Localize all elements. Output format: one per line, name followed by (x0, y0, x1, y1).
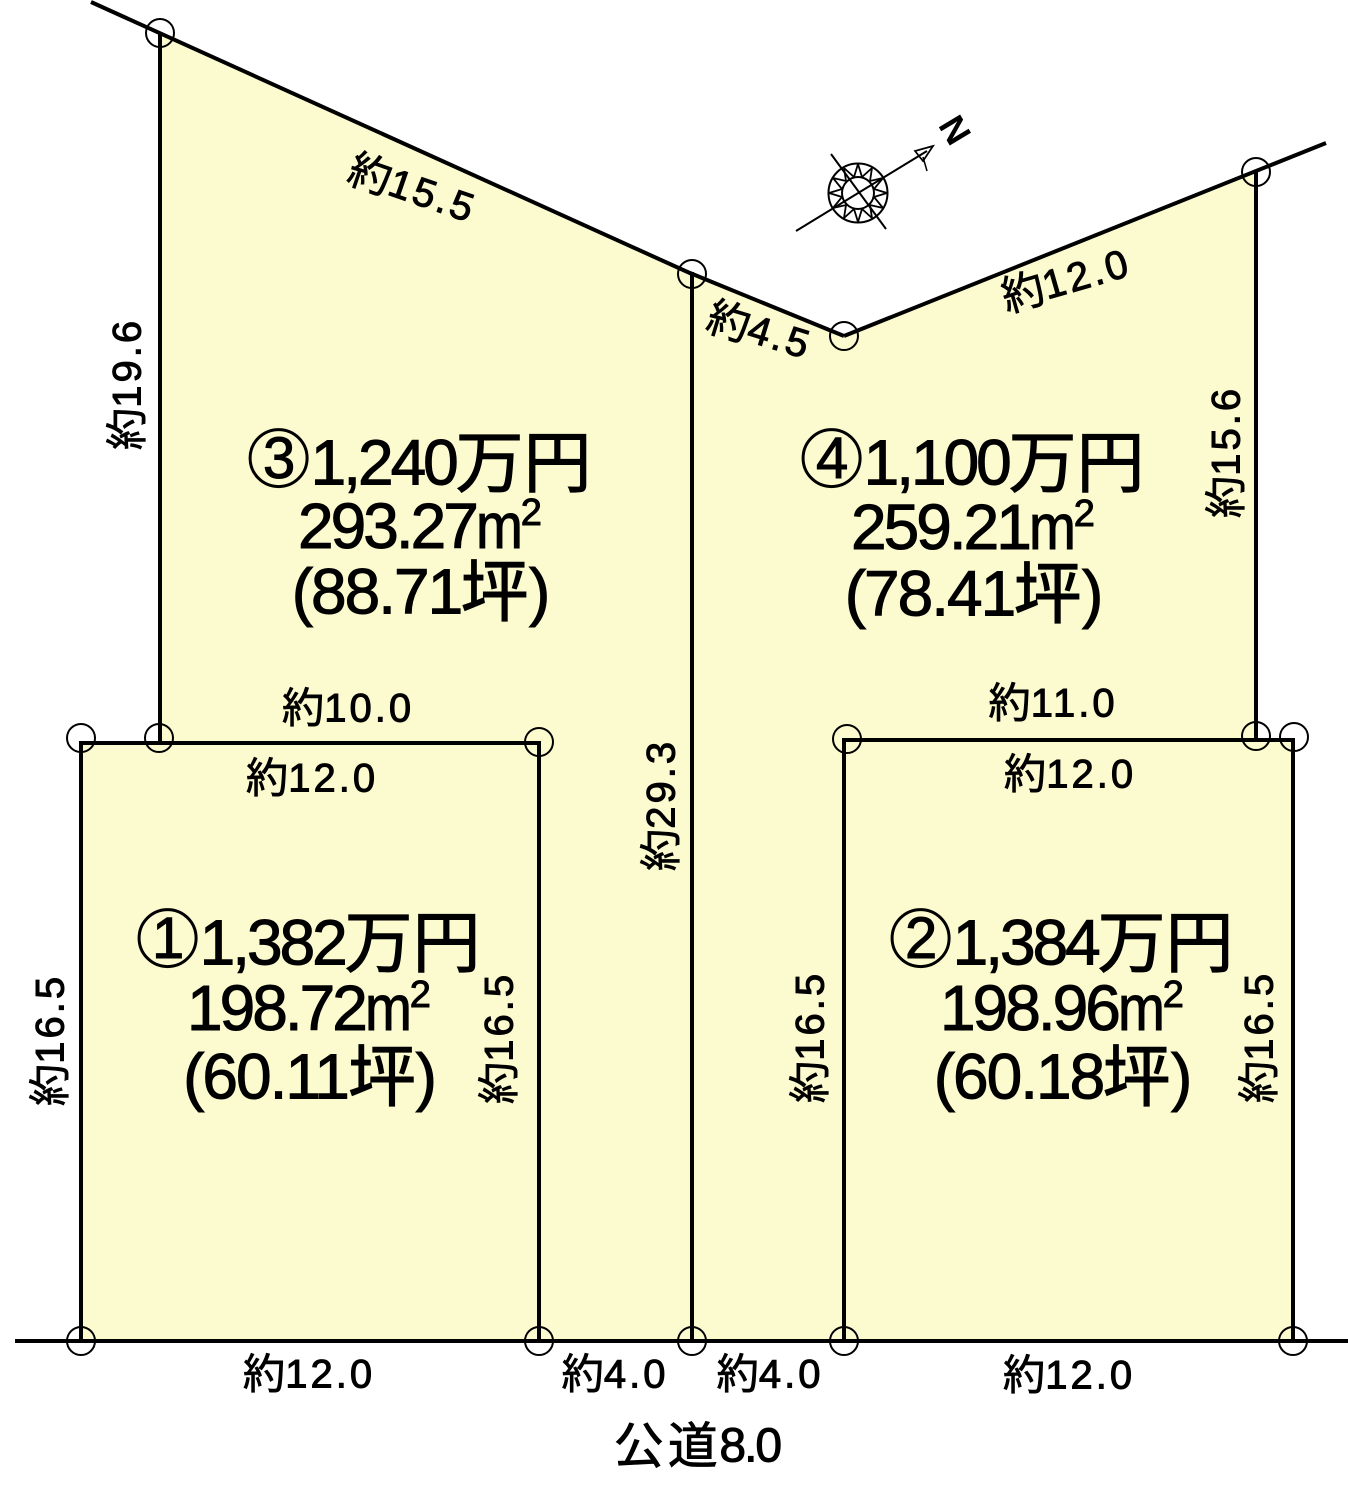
svg-text:N: N (931, 108, 980, 151)
